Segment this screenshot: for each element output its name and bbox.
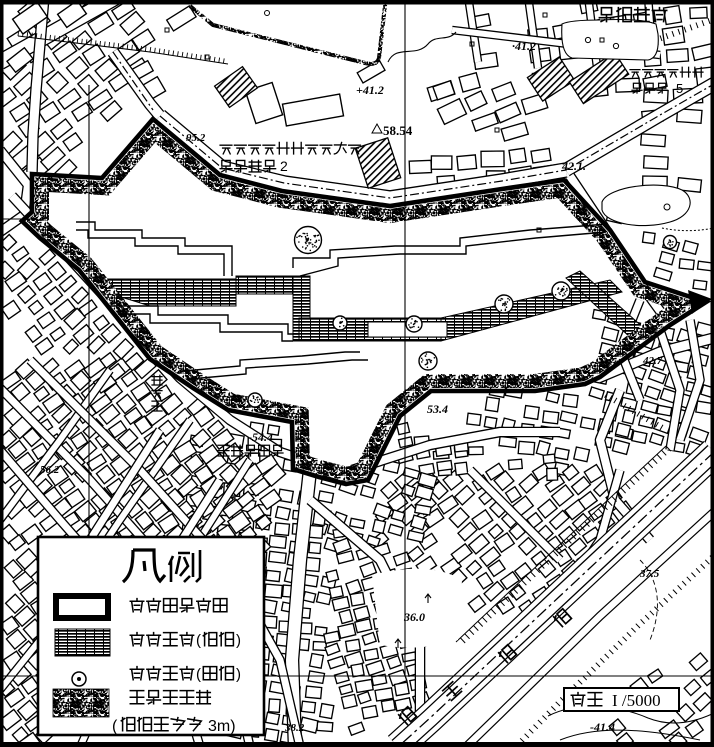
svg-text:(: ( [196,632,201,649]
svg-text:56.2: 56.2 [40,464,60,476]
svg-text:+41.2: +41.2 [356,83,384,97]
svg-text:-41.4: -41.4 [590,720,615,734]
svg-text:·41.2: ·41.2 [512,39,536,53]
svg-text:95.2: 95.2 [186,132,206,144]
svg-text:2: 2 [280,158,288,174]
svg-text:37.5: 37.5 [639,568,660,580]
svg-text:38.2: 38.2 [284,722,305,734]
svg-text:42.1.: 42.1. [561,159,586,173]
svg-text:3m): 3m) [208,718,236,735]
svg-text:42.7: 42.7 [642,355,663,367]
svg-text:): ) [236,666,241,683]
svg-text:): ) [236,632,241,649]
svg-text:(: ( [112,718,118,735]
svg-text:-54.4: -54.4 [248,430,273,444]
svg-text:53.4: 53.4 [427,402,448,416]
svg-text:36.0: 36.0 [403,610,425,624]
svg-text:58.54: 58.54 [383,123,413,138]
svg-text:5: 5 [676,81,683,96]
svg-text:(: ( [196,666,201,683]
svg-text:I /5000: I /5000 [612,691,661,710]
